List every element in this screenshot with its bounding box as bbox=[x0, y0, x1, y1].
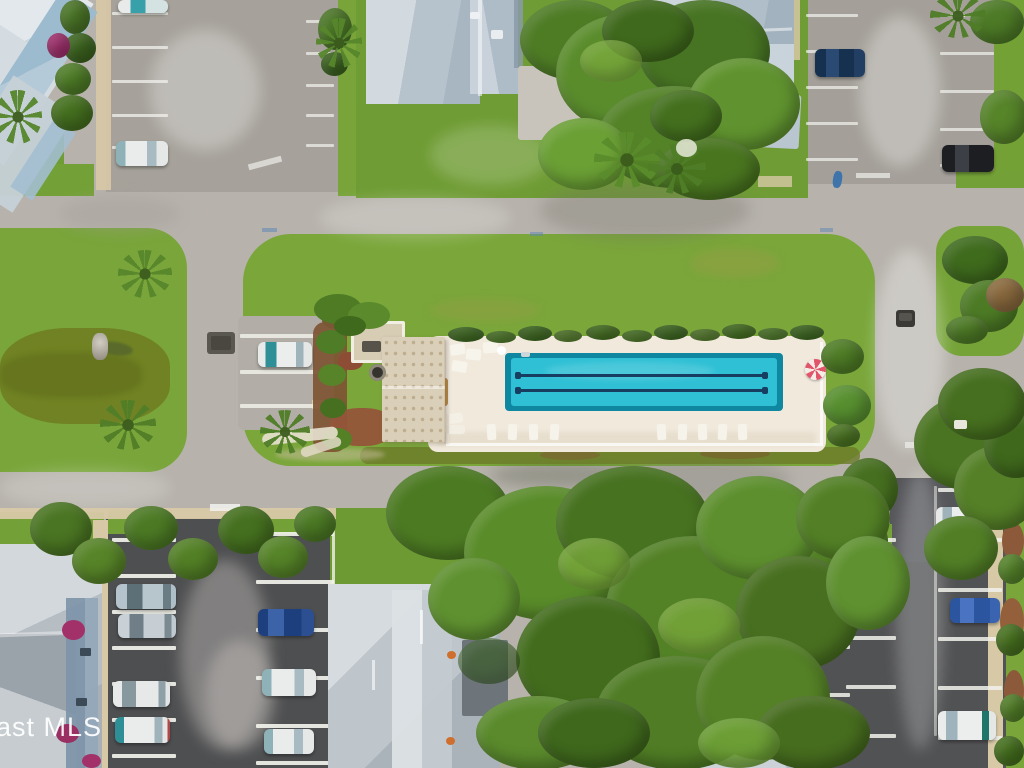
clubhouse-shadow bbox=[444, 340, 449, 444]
aerial-photo-community-pool: ast MLS bbox=[0, 0, 1024, 768]
street-grill-top bbox=[899, 313, 912, 321]
mls-watermark: ast MLS bbox=[0, 712, 102, 743]
pedestrian-figure bbox=[832, 170, 843, 188]
catch-basin-grate bbox=[211, 336, 231, 350]
street-objects bbox=[0, 0, 1024, 768]
